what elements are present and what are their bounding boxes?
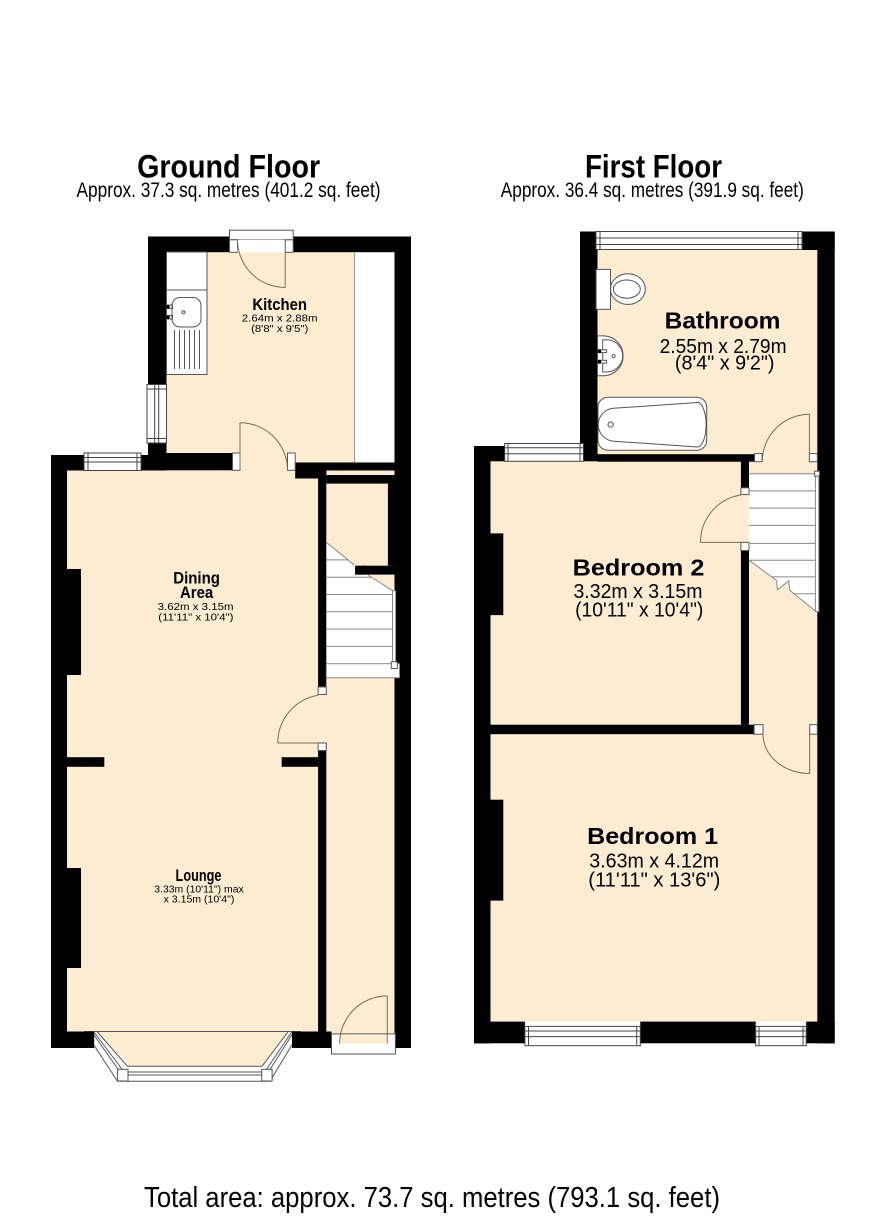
svg-text:Approx. 37.3 sq. metres (401.2: Approx. 37.3 sq. metres (401.2 sq. feet): [77, 179, 381, 202]
svg-text:Approx. 36.4 sq. metres (391.9: Approx. 36.4 sq. metres (391.9 sq. feet): [501, 179, 804, 202]
svg-text:Total area: approx. 73.7 sq. m: Total area: approx. 73.7 sq. metres (793…: [144, 1182, 720, 1214]
svg-text:Bedroom 1: Bedroom 1: [587, 823, 718, 849]
svg-text:x 3.15m (10'4"): x 3.15m (10'4"): [164, 894, 235, 906]
svg-text:Kitchen: Kitchen: [252, 296, 307, 314]
svg-text:(8'4" x 9'2"): (8'4" x 9'2"): [675, 353, 775, 375]
svg-text:(11'11" x 10'4"): (11'11" x 10'4"): [158, 611, 233, 623]
svg-text:(11'11" x 13'6"): (11'11" x 13'6"): [588, 869, 720, 891]
svg-text:(8'8" x 9'5"): (8'8" x 9'5"): [251, 323, 308, 335]
svg-text:Lounge: Lounge: [176, 867, 222, 885]
svg-text:(10'11" x 10'4"): (10'11" x 10'4"): [575, 600, 703, 622]
svg-text:Bedroom 2: Bedroom 2: [573, 554, 705, 580]
svg-text:Bathroom: Bathroom: [665, 308, 781, 334]
svg-text:Area: Area: [180, 584, 214, 602]
